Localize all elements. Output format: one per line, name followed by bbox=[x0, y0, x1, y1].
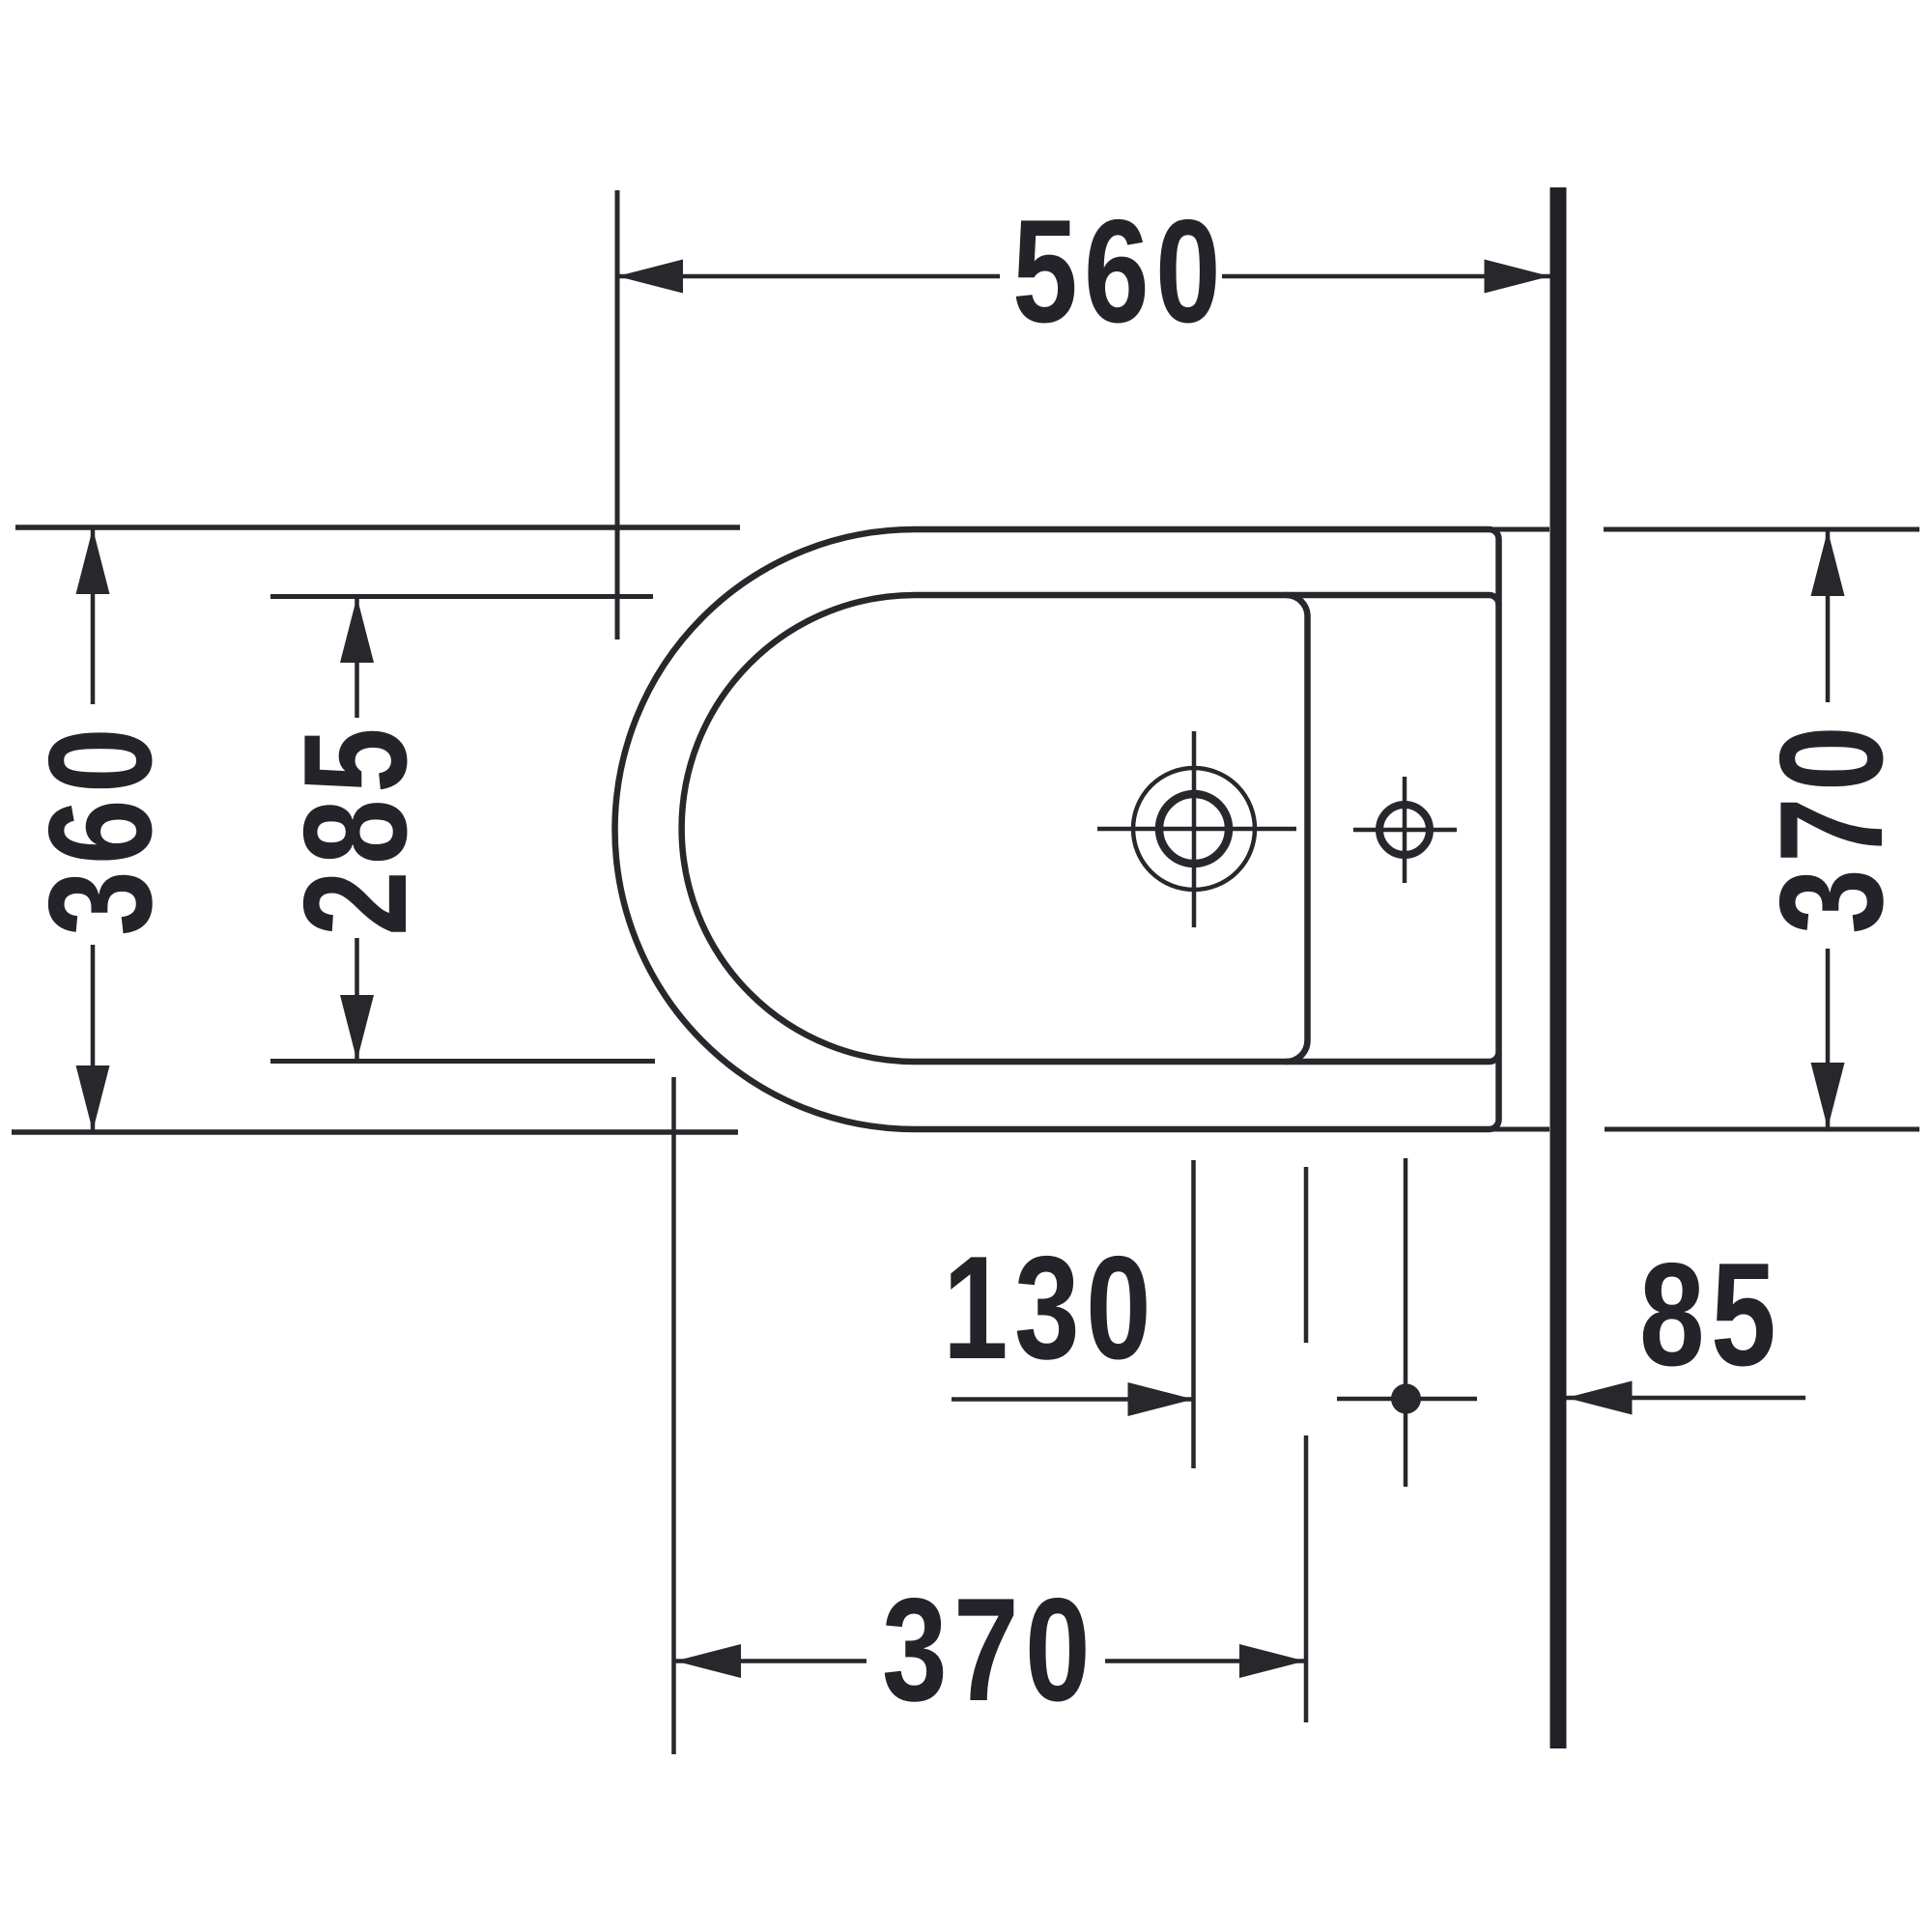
svg-text:130: 130 bbox=[943, 1226, 1157, 1390]
svg-text:85: 85 bbox=[1639, 1233, 1782, 1397]
svg-text:360: 360 bbox=[18, 722, 183, 936]
svg-text:370: 370 bbox=[882, 1568, 1096, 1732]
svg-text:370: 370 bbox=[1749, 720, 1914, 934]
svg-text:560: 560 bbox=[1012, 189, 1227, 354]
svg-text:285: 285 bbox=[273, 722, 438, 936]
